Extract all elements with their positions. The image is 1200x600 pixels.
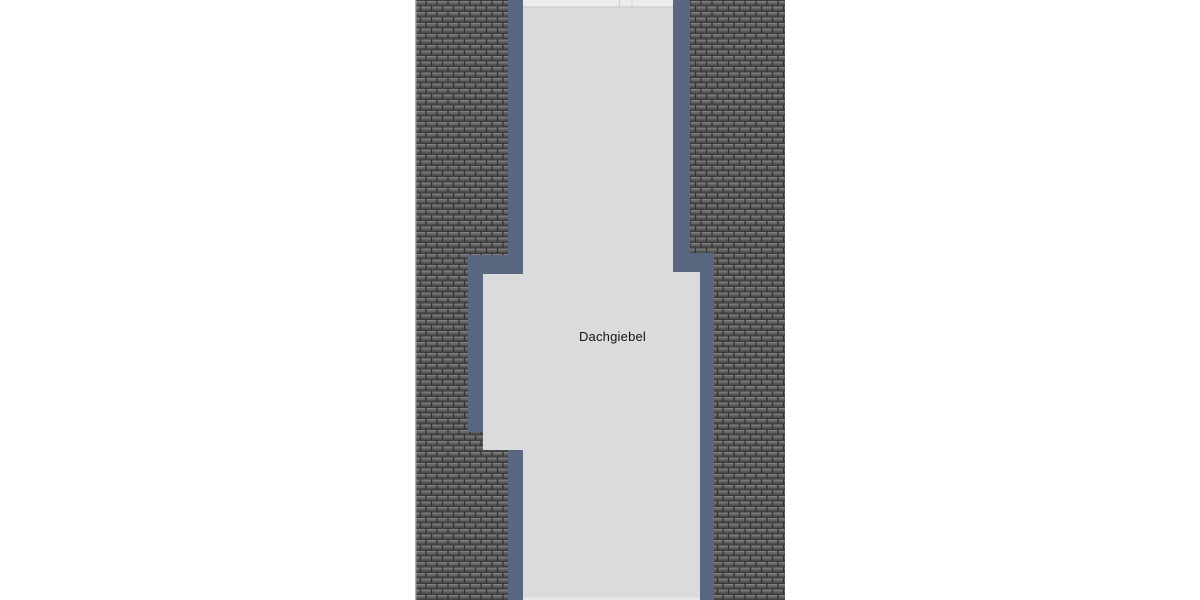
gable-label: Dachgiebel bbox=[579, 329, 646, 344]
roof-left-edge bbox=[415, 0, 416, 600]
roof-plan-canvas: Dachgiebel bbox=[415, 0, 785, 600]
ridge-strip bbox=[523, 0, 673, 7]
ridge-tick bbox=[619, 0, 620, 7]
page: Dachgiebel bbox=[0, 0, 1200, 600]
left-margin bbox=[0, 0, 415, 600]
gable-drawing: Dachgiebel bbox=[415, 0, 785, 600]
ridge-tick bbox=[632, 0, 633, 7]
ridge-line bbox=[523, 7, 673, 8]
right-margin bbox=[785, 0, 1200, 600]
